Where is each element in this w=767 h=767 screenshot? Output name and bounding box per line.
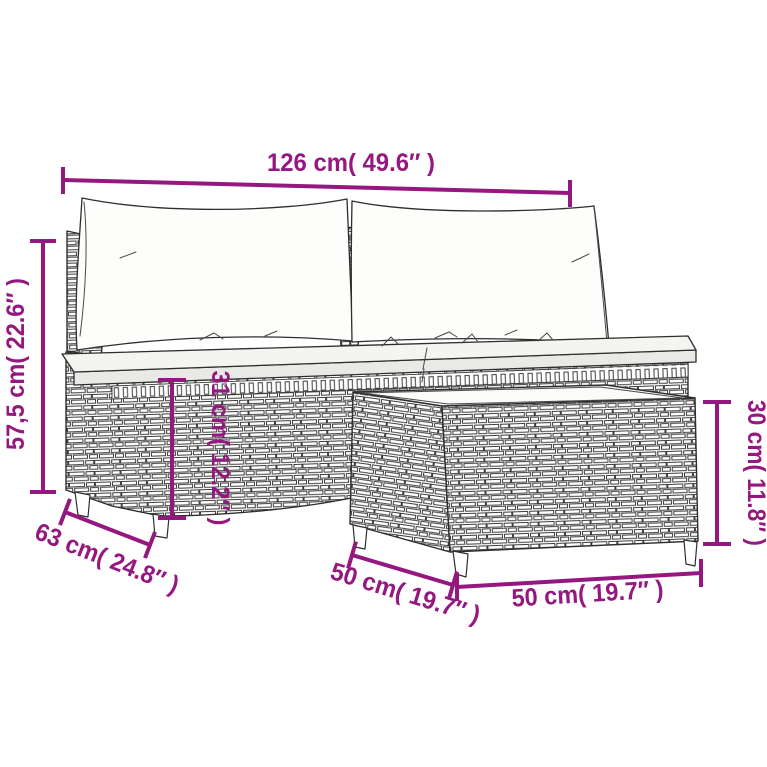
product-dimension-image: 126 cm( 49.6″ ) 57,5 cm( 22.6″ ) 31 cm( … xyxy=(0,0,767,767)
total-height-label: 57,5 cm( 22.6″ ) xyxy=(2,278,30,450)
base-height-label: 31 cm( 12.2″ ) xyxy=(206,371,234,526)
table-leg-right xyxy=(684,540,697,566)
dimension-table-height: 30 cm( 11.8″ ) xyxy=(703,400,767,546)
table-height-label: 30 cm( 11.8″ ) xyxy=(742,400,767,546)
sofa-leg-left xyxy=(75,492,90,517)
dimension-diagram: 126 cm( 49.6″ ) 57,5 cm( 22.6″ ) 31 cm( … xyxy=(0,0,767,767)
back-cushion-left xyxy=(76,198,353,350)
table-front-face xyxy=(442,398,698,552)
dimension-table-width: 50 cm( 19.7″ ) xyxy=(457,559,701,613)
total-width-label: 126 cm( 49.6″ ) xyxy=(267,149,435,177)
coffee-table xyxy=(350,385,698,577)
back-cushion-right xyxy=(351,201,609,345)
dimension-total-height: 57,5 cm( 22.6″ ) xyxy=(2,241,56,492)
dimension-total-width: 126 cm( 49.6″ ) xyxy=(63,149,570,207)
